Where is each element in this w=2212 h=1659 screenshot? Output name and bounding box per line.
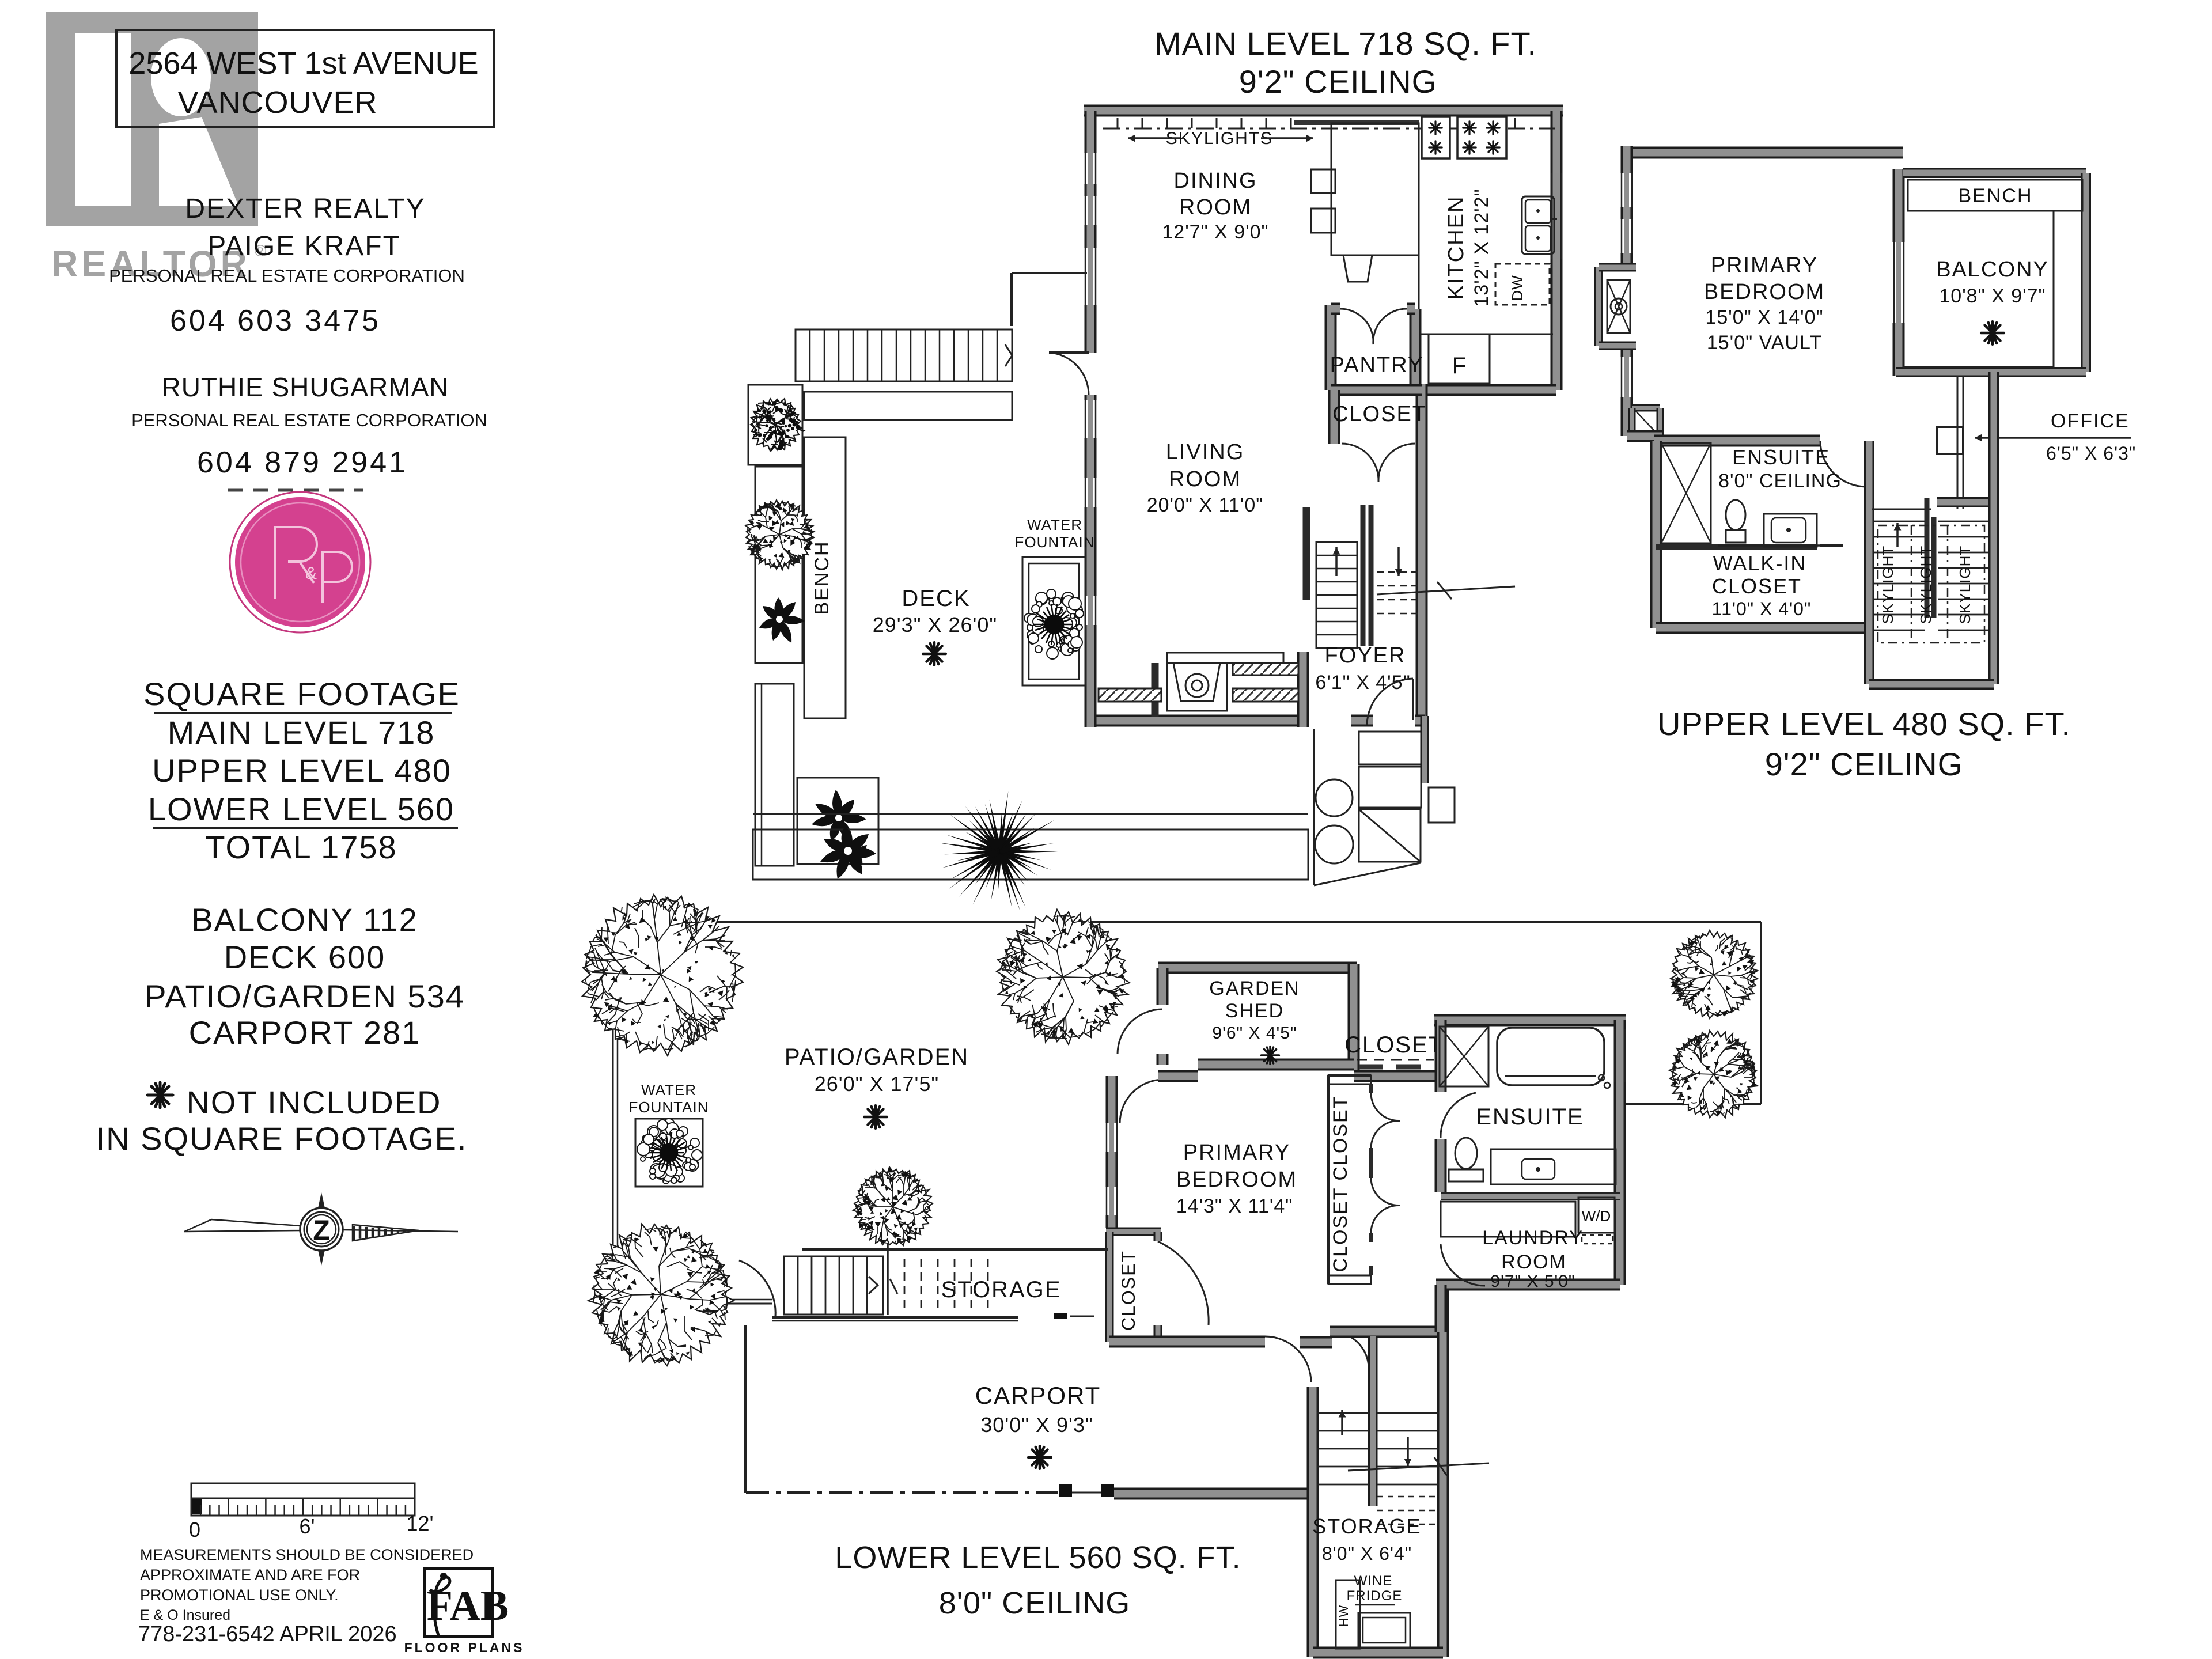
svg-text:BEDROOM: BEDROOM — [1176, 1168, 1297, 1192]
svg-text:KITCHEN: KITCHEN — [1444, 196, 1468, 300]
svg-text:ENSUITE: ENSUITE — [1476, 1104, 1584, 1130]
svg-text:VANCOUVER: VANCOUVER — [177, 85, 377, 120]
svg-text:WATER: WATER — [1027, 516, 1082, 533]
svg-text:DECK 600: DECK 600 — [224, 939, 386, 975]
svg-text:11'0" X 4'0": 11'0" X 4'0" — [1712, 599, 1812, 619]
svg-text:SKYLIGHTS: SKYLIGHTS — [1166, 129, 1273, 148]
svg-text:Z: Z — [313, 1215, 329, 1246]
svg-text:15'0" VAULT: 15'0" VAULT — [1707, 332, 1822, 354]
svg-text:15'0" X 14'0": 15'0" X 14'0" — [1705, 306, 1823, 328]
svg-text:ROOM: ROOM — [1169, 467, 1241, 491]
svg-text:F: F — [1452, 353, 1466, 378]
svg-text:14'3" X 11'4": 14'3" X 11'4" — [1176, 1195, 1293, 1217]
svg-text:0: 0 — [189, 1518, 200, 1541]
svg-text:FRIDGE: FRIDGE — [1347, 1588, 1403, 1604]
svg-text:SKYLIGHT: SKYLIGHT — [1956, 546, 1974, 624]
svg-text:MAIN LEVEL 718 SQ. FT.: MAIN LEVEL 718 SQ. FT. — [1154, 25, 1537, 62]
svg-text:PANTRY: PANTRY — [1330, 353, 1424, 377]
svg-text:LOWER LEVEL 560: LOWER LEVEL 560 — [148, 791, 454, 827]
svg-text:IN SQUARE FOOTAGE.: IN SQUARE FOOTAGE. — [96, 1120, 468, 1157]
svg-text:CLOSET: CLOSET — [1712, 574, 1802, 598]
svg-text:SQUARE FOOTAGE: SQUARE FOOTAGE — [143, 676, 460, 712]
svg-text:DINING: DINING — [1174, 169, 1257, 193]
svg-text:9'2" CEILING: 9'2" CEILING — [1239, 63, 1437, 100]
svg-text:CLOSET CLOSET: CLOSET CLOSET — [1330, 1096, 1351, 1272]
svg-text:DW: DW — [1509, 275, 1526, 301]
svg-text:FAB: FAB — [427, 1582, 509, 1630]
svg-text:CLOSET: CLOSET — [1118, 1250, 1139, 1331]
svg-text:PRIMARY: PRIMARY — [1711, 253, 1818, 278]
svg-text:MEASUREMENTS SHOULD BE CONSIDE: MEASUREMENTS SHOULD BE CONSIDERED — [140, 1546, 474, 1563]
svg-text:MAIN LEVEL 718: MAIN LEVEL 718 — [168, 714, 435, 751]
svg-text:SHED: SHED — [1225, 1000, 1284, 1022]
svg-text:26'0" X 17'5": 26'0" X 17'5" — [815, 1072, 939, 1096]
svg-text:PATIO/GARDEN 534: PATIO/GARDEN 534 — [145, 978, 465, 1014]
svg-text:UPPER LEVEL 480: UPPER LEVEL 480 — [152, 752, 452, 789]
svg-text:604 879 2941: 604 879 2941 — [197, 446, 408, 479]
svg-text:CARPORT: CARPORT — [975, 1382, 1101, 1409]
svg-text:GARDEN: GARDEN — [1209, 978, 1300, 999]
svg-text:UPPER LEVEL 480 SQ. FT.: UPPER LEVEL 480 SQ. FT. — [1657, 706, 2071, 742]
svg-text:&: & — [305, 564, 317, 583]
svg-text:FOUNTAIN: FOUNTAIN — [629, 1099, 709, 1116]
svg-text:CLOSET: CLOSET — [1332, 402, 1427, 426]
svg-text:STORAGE: STORAGE — [1312, 1514, 1421, 1538]
svg-text:LOWER LEVEL 560 SQ. FT.: LOWER LEVEL 560 SQ. FT. — [835, 1540, 1241, 1575]
svg-text:2564 WEST 1st AVENUE: 2564 WEST 1st AVENUE — [128, 46, 478, 81]
svg-text:NOT INCLUDED: NOT INCLUDED — [186, 1084, 441, 1120]
svg-text:12'7" X 9'0": 12'7" X 9'0" — [1162, 221, 1268, 243]
svg-text:8'0" CEILING: 8'0" CEILING — [939, 1586, 1131, 1620]
svg-text:ENSUITE: ENSUITE — [1732, 445, 1830, 469]
svg-text:SKYLIGHT: SKYLIGHT — [1879, 546, 1896, 624]
svg-text:LIVING: LIVING — [1166, 440, 1245, 464]
svg-text:OFFICE: OFFICE — [2051, 410, 2130, 432]
svg-text:13'2" X 12'2": 13'2" X 12'2" — [1471, 188, 1493, 306]
svg-text:9'2" CEILING: 9'2" CEILING — [1765, 746, 1963, 782]
svg-text:20'0" X 11'0": 20'0" X 11'0" — [1147, 494, 1264, 516]
svg-text:TOTAL 1758: TOTAL 1758 — [205, 829, 397, 865]
svg-text:778-231-6542 APRIL 2026: 778-231-6542 APRIL 2026 — [138, 1622, 397, 1646]
svg-text:PRIMARY: PRIMARY — [1183, 1141, 1290, 1165]
svg-text:BEDROOM: BEDROOM — [1704, 280, 1825, 304]
svg-text:LAUNDRY: LAUNDRY — [1482, 1227, 1584, 1249]
svg-text:HW: HW — [1336, 1605, 1351, 1627]
svg-text:PROMOTIONAL USE ONLY.: PROMOTIONAL USE ONLY. — [140, 1586, 339, 1604]
svg-text:RUTHIE SHUGARMAN: RUTHIE SHUGARMAN — [161, 372, 449, 402]
svg-text:CLOSET: CLOSET — [1344, 1032, 1444, 1058]
svg-text:10'8" X 9'7": 10'8" X 9'7" — [1939, 285, 2046, 307]
svg-text:FOUNTAIN: FOUNTAIN — [1015, 533, 1095, 551]
svg-text:CARPORT 281: CARPORT 281 — [189, 1014, 421, 1051]
svg-text:6'5" X 6'3": 6'5" X 6'3" — [2046, 443, 2136, 464]
svg-text:FOYER: FOYER — [1325, 643, 1406, 668]
svg-text:PAIGE KRAFT: PAIGE KRAFT — [207, 231, 401, 262]
svg-text:SKYLIGHT: SKYLIGHT — [1917, 546, 1934, 624]
svg-text:WATER: WATER — [641, 1081, 696, 1099]
svg-text:W/D: W/D — [1582, 1207, 1611, 1225]
svg-text:FLOOR PLANS: FLOOR PLANS — [404, 1640, 525, 1655]
svg-text:9'7" X 5'0": 9'7" X 5'0" — [1490, 1272, 1575, 1291]
svg-text:APPROXIMATE AND ARE FOR: APPROXIMATE AND ARE FOR — [140, 1566, 360, 1584]
svg-text:8'0" CEILING: 8'0" CEILING — [1718, 470, 1842, 492]
svg-text:DEXTER REALTY: DEXTER REALTY — [185, 194, 425, 224]
svg-text:12': 12' — [407, 1512, 434, 1535]
svg-text:PERSONAL REAL ESTATE CORPORATI: PERSONAL REAL ESTATE CORPORATION — [131, 410, 487, 430]
svg-text:BALCONY: BALCONY — [1936, 257, 2049, 282]
svg-text:DECK: DECK — [902, 586, 970, 611]
svg-text:STORAGE: STORAGE — [941, 1277, 1062, 1302]
svg-text:ROOM: ROOM — [1179, 195, 1252, 219]
svg-text:WALK-IN: WALK-IN — [1713, 551, 1807, 575]
svg-text:6': 6' — [300, 1514, 315, 1538]
svg-text:BENCH: BENCH — [1958, 185, 2032, 207]
svg-text:PERSONAL REAL ESTATE CORPORATI: PERSONAL REAL ESTATE CORPORATION — [109, 266, 465, 286]
svg-text:8'0" X 6'4": 8'0" X 6'4" — [1322, 1543, 1412, 1564]
svg-text:E & O Insured: E & O Insured — [140, 1607, 230, 1623]
svg-text:PATIO/GARDEN: PATIO/GARDEN — [785, 1044, 969, 1070]
svg-text:604 603 3475: 604 603 3475 — [170, 304, 381, 338]
svg-text:ROOM: ROOM — [1501, 1251, 1567, 1273]
svg-text:29'3" X 26'0": 29'3" X 26'0" — [873, 613, 997, 637]
svg-text:BENCH: BENCH — [811, 540, 833, 615]
svg-text:9'6" X 4'5": 9'6" X 4'5" — [1212, 1024, 1297, 1043]
svg-text:BALCONY 112: BALCONY 112 — [191, 902, 418, 938]
svg-text:30'0" X 9'3": 30'0" X 9'3" — [980, 1413, 1093, 1437]
